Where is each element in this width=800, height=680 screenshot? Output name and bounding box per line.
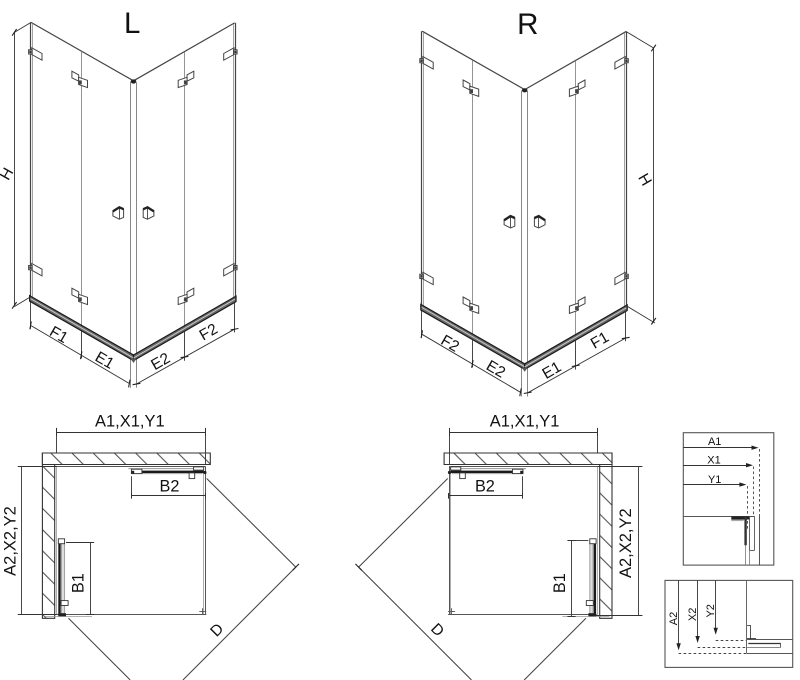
svg-text:F1: F1 <box>588 329 612 353</box>
svg-text:H: H <box>634 171 654 189</box>
svg-text:E1: E1 <box>92 349 117 373</box>
svg-text:D: D <box>427 620 447 640</box>
svg-text:B2: B2 <box>160 478 180 496</box>
svg-text:A1,X1,Y1: A1,X1,Y1 <box>490 412 560 430</box>
svg-text:A1,X1,Y1: A1,X1,Y1 <box>95 412 165 430</box>
svg-text:E1: E1 <box>539 359 564 383</box>
svg-text:X1: X1 <box>707 455 720 467</box>
svg-text:A2,X2,Y2: A2,X2,Y2 <box>617 508 635 578</box>
svg-text:D: D <box>207 620 227 640</box>
svg-text:L: L <box>124 7 140 40</box>
svg-text:R: R <box>517 8 538 41</box>
svg-text:B1: B1 <box>70 573 88 593</box>
svg-text:F2: F2 <box>197 321 221 345</box>
svg-text:A2,X2,Y2: A2,X2,Y2 <box>1 506 19 576</box>
svg-text:E2: E2 <box>148 350 173 374</box>
svg-text:B2: B2 <box>475 478 495 496</box>
svg-text:A1: A1 <box>708 436 721 448</box>
svg-text:B1: B1 <box>551 573 569 593</box>
svg-text:Y1: Y1 <box>708 474 721 486</box>
svg-text:E2: E2 <box>483 357 508 381</box>
svg-text:F1: F1 <box>47 323 71 347</box>
svg-text:F2: F2 <box>438 332 462 356</box>
